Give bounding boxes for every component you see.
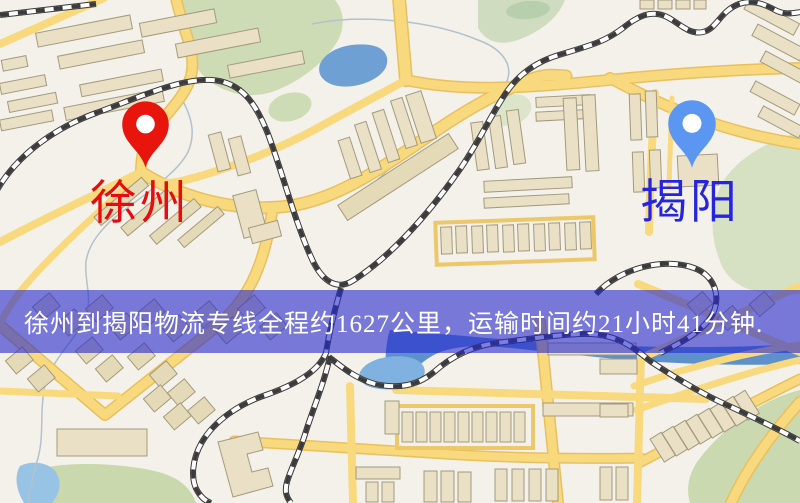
origin-city-label: 徐州 [90,181,190,228]
map-pin-icon [121,100,170,169]
origin-pin[interactable] [121,100,170,169]
route-info-banner: 徐州到揭阳物流专线全程约1627公里，运输时间约21小时41分钟. [0,290,800,353]
map-canvas[interactable] [0,0,800,503]
destination-pin[interactable] [667,99,717,169]
origin-pin-hole [136,115,155,134]
map-screenshot: 徐州到揭阳物流专线全程约1627公里，运输时间约21小时41分钟. 徐州 揭阳 [0,0,800,503]
destination-city-label: 揭阳 [640,180,740,227]
destination-pin-hole [683,114,702,133]
origin-pin-shape [122,101,169,167]
destination-pin-shape [668,100,716,168]
map-pin-icon [667,99,717,169]
route-info-text: 徐州到揭阳物流专线全程约1627公里，运输时间约21小时41分钟. [24,304,763,340]
